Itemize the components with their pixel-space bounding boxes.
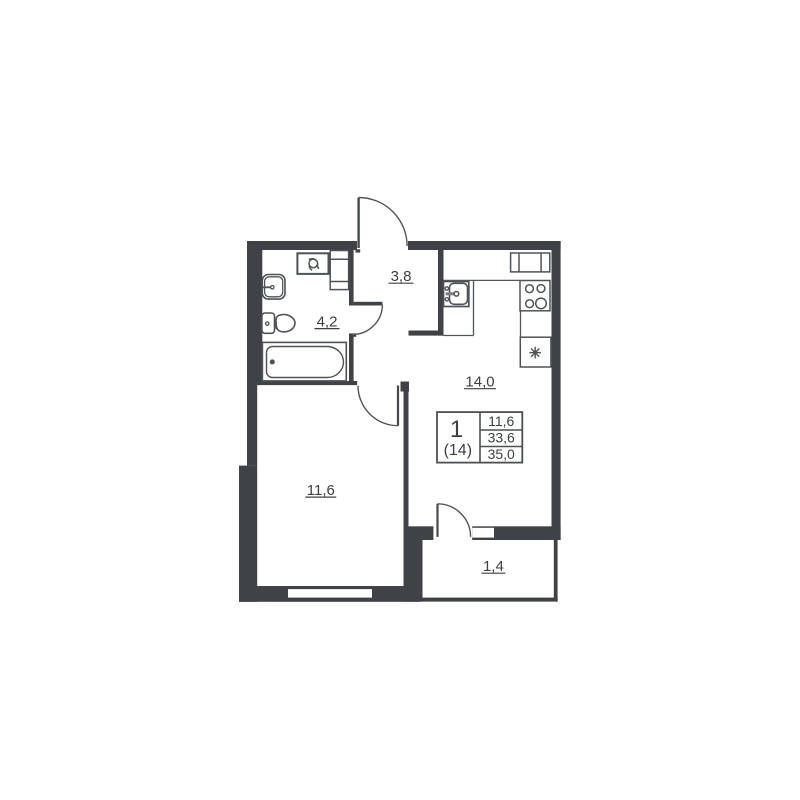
svg-text:1,4: 1,4 bbox=[483, 558, 504, 575]
svg-text:11,6: 11,6 bbox=[307, 482, 335, 499]
svg-text:35,0: 35,0 bbox=[488, 446, 515, 462]
svg-text:11,6: 11,6 bbox=[488, 413, 514, 429]
svg-text:4,2: 4,2 bbox=[317, 313, 338, 330]
svg-text:33,6: 33,6 bbox=[488, 430, 515, 446]
svg-text:(14): (14) bbox=[444, 442, 472, 459]
svg-text:3,8: 3,8 bbox=[391, 268, 412, 285]
svg-text:1: 1 bbox=[450, 416, 463, 443]
svg-text:14,0: 14,0 bbox=[465, 374, 494, 391]
